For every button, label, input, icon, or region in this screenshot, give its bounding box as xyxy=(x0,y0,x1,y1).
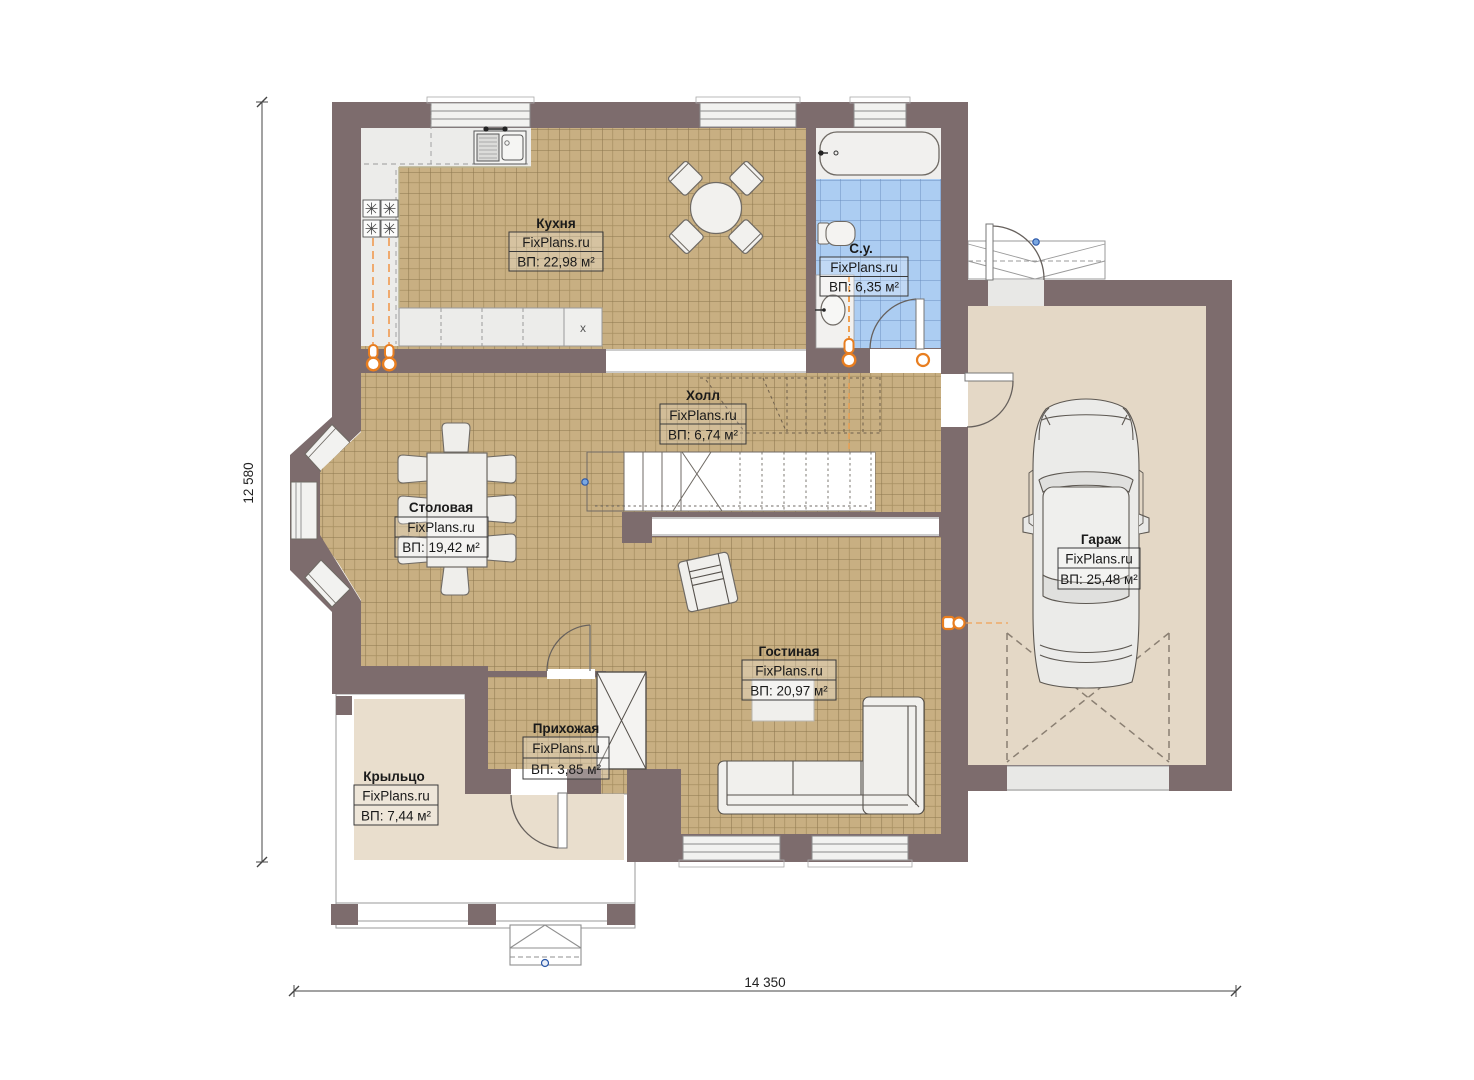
svg-text:x: x xyxy=(580,321,586,335)
svg-text:Столовая: Столовая xyxy=(409,500,473,515)
svg-text:FixPlans.ru: FixPlans.ru xyxy=(755,664,823,679)
svg-text:FixPlans.ru: FixPlans.ru xyxy=(532,741,600,756)
svg-text:ВП: 22,98 м²: ВП: 22,98 м² xyxy=(517,255,595,270)
svg-text:ВП: 7,44 м²: ВП: 7,44 м² xyxy=(361,809,432,824)
svg-text:12 580: 12 580 xyxy=(241,462,256,503)
svg-text:ВП: 25,48 м²: ВП: 25,48 м² xyxy=(1060,572,1138,587)
svg-text:ВП: 19,42 м²: ВП: 19,42 м² xyxy=(402,540,480,555)
svg-text:FixPlans.ru: FixPlans.ru xyxy=(669,408,737,423)
svg-text:Прихожая: Прихожая xyxy=(533,721,600,736)
svg-text:ВП: 6,74 м²: ВП: 6,74 м² xyxy=(668,428,739,443)
svg-text:FixPlans.ru: FixPlans.ru xyxy=(522,235,590,250)
svg-text:14 350: 14 350 xyxy=(744,975,785,990)
svg-text:ВП: 20,97 м²: ВП: 20,97 м² xyxy=(750,684,828,699)
svg-text:ВП: 3,85 м²: ВП: 3,85 м² xyxy=(531,762,602,777)
svg-text:Крыльцо: Крыльцо xyxy=(363,769,424,784)
svg-text:ВП: 6,35 м²: ВП: 6,35 м² xyxy=(829,280,900,295)
svg-text:FixPlans.ru: FixPlans.ru xyxy=(1065,552,1133,567)
svg-text:Гараж: Гараж xyxy=(1081,532,1122,547)
svg-text:FixPlans.ru: FixPlans.ru xyxy=(830,260,898,275)
svg-text:С.у.: С.у. xyxy=(849,241,873,256)
svg-text:Гостиная: Гостиная xyxy=(758,644,819,659)
svg-text:Холл: Холл xyxy=(686,388,720,403)
svg-text:FixPlans.ru: FixPlans.ru xyxy=(362,789,430,804)
svg-text:FixPlans.ru: FixPlans.ru xyxy=(407,520,475,535)
svg-text:Кухня: Кухня xyxy=(536,216,575,231)
